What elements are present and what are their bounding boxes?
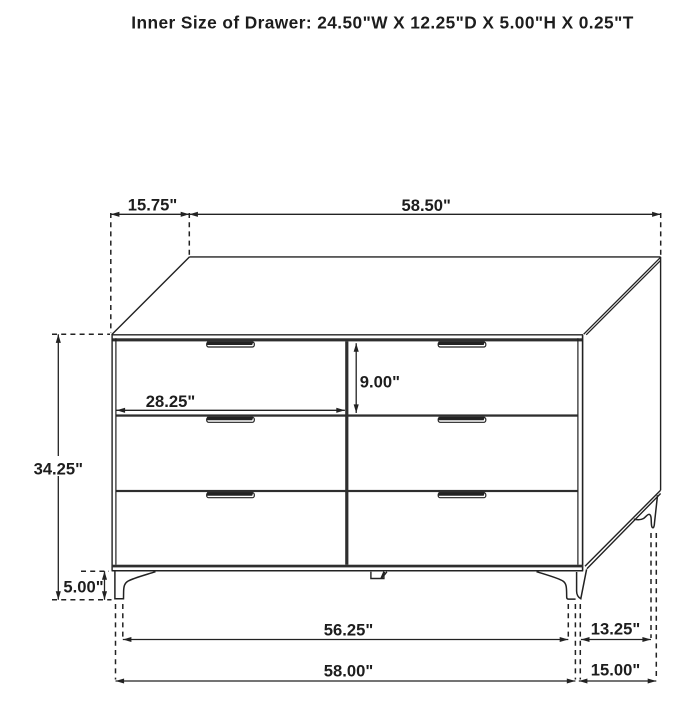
svg-text:9.00": 9.00" xyxy=(360,373,400,392)
svg-text:15.75": 15.75" xyxy=(128,196,177,215)
svg-text:56.25": 56.25" xyxy=(324,621,373,640)
svg-text:34.25": 34.25" xyxy=(34,459,83,478)
svg-text:58.50": 58.50" xyxy=(401,196,450,215)
svg-text:15.00": 15.00" xyxy=(591,661,640,680)
svg-text:28.25": 28.25" xyxy=(146,392,195,411)
svg-text:5.00": 5.00" xyxy=(63,577,103,596)
svg-text:13.25": 13.25" xyxy=(591,620,640,639)
svg-text:Inner Size of Drawer: 24.50"W: Inner Size of Drawer: 24.50"W X 12.25"D … xyxy=(131,13,633,33)
svg-text:58.00": 58.00" xyxy=(324,662,373,681)
